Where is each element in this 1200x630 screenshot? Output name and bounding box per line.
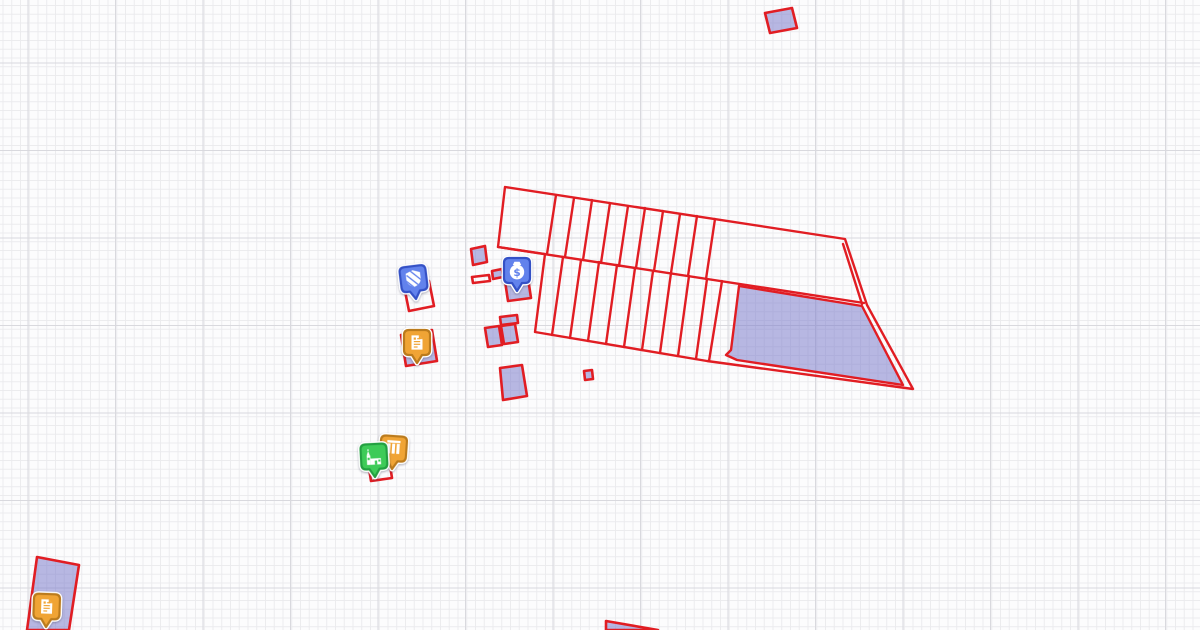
map-viewport[interactable]: $ (0, 0, 1200, 630)
parcel-tiny-square[interactable] (584, 370, 593, 380)
svg-text:$: $ (513, 267, 520, 279)
strip-divider-upper[interactable] (671, 214, 680, 273)
document-icon (412, 335, 423, 349)
marker-shield[interactable] (399, 265, 429, 301)
strip-divider-upper[interactable] (619, 206, 628, 266)
parcel-top-right[interactable] (765, 8, 797, 33)
strip-divider-upper[interactable] (706, 219, 715, 279)
parcel-bottom-wedge[interactable] (606, 621, 658, 630)
strip-divider-lower[interactable] (709, 281, 722, 361)
strip-divider-lower[interactable] (660, 273, 671, 353)
strip-divider-lower[interactable] (696, 279, 707, 359)
strip-divider-lower[interactable] (570, 260, 581, 338)
strip-divider-lower[interactable] (606, 265, 617, 344)
strip-divider-upper[interactable] (565, 198, 574, 257)
strip-divider-upper[interactable] (654, 211, 663, 271)
strip-block-inner-edge (843, 244, 862, 304)
strip-divider-upper[interactable] (583, 200, 592, 260)
strip-divider-lower[interactable] (552, 257, 563, 335)
parcel-small-1[interactable] (471, 246, 487, 265)
strip-divider-upper[interactable] (636, 208, 645, 268)
parcel-small-3[interactable] (500, 365, 527, 400)
parcel-large-infill[interactable] (726, 286, 903, 385)
strip-divider-lower[interactable] (678, 276, 689, 356)
map-shapes-layer: $ (0, 0, 1200, 630)
marker-church[interactable] (360, 443, 388, 477)
strip-divider-lower[interactable] (624, 268, 635, 347)
field-strip-block[interactable] (498, 187, 913, 389)
strip-block-middle-line (498, 247, 864, 303)
strip-divider-lower[interactable] (588, 262, 599, 341)
parcel-pair-right[interactable] (501, 324, 518, 344)
strip-divider-upper[interactable] (601, 203, 610, 263)
strip-divider-lower[interactable] (642, 271, 653, 350)
parcel-pair-left[interactable] (485, 326, 502, 347)
parcel-small-2[interactable] (492, 269, 503, 279)
strip-divider-upper[interactable] (547, 195, 556, 254)
strip-divider-upper[interactable] (688, 216, 697, 276)
parcel-dash[interactable] (472, 275, 490, 283)
